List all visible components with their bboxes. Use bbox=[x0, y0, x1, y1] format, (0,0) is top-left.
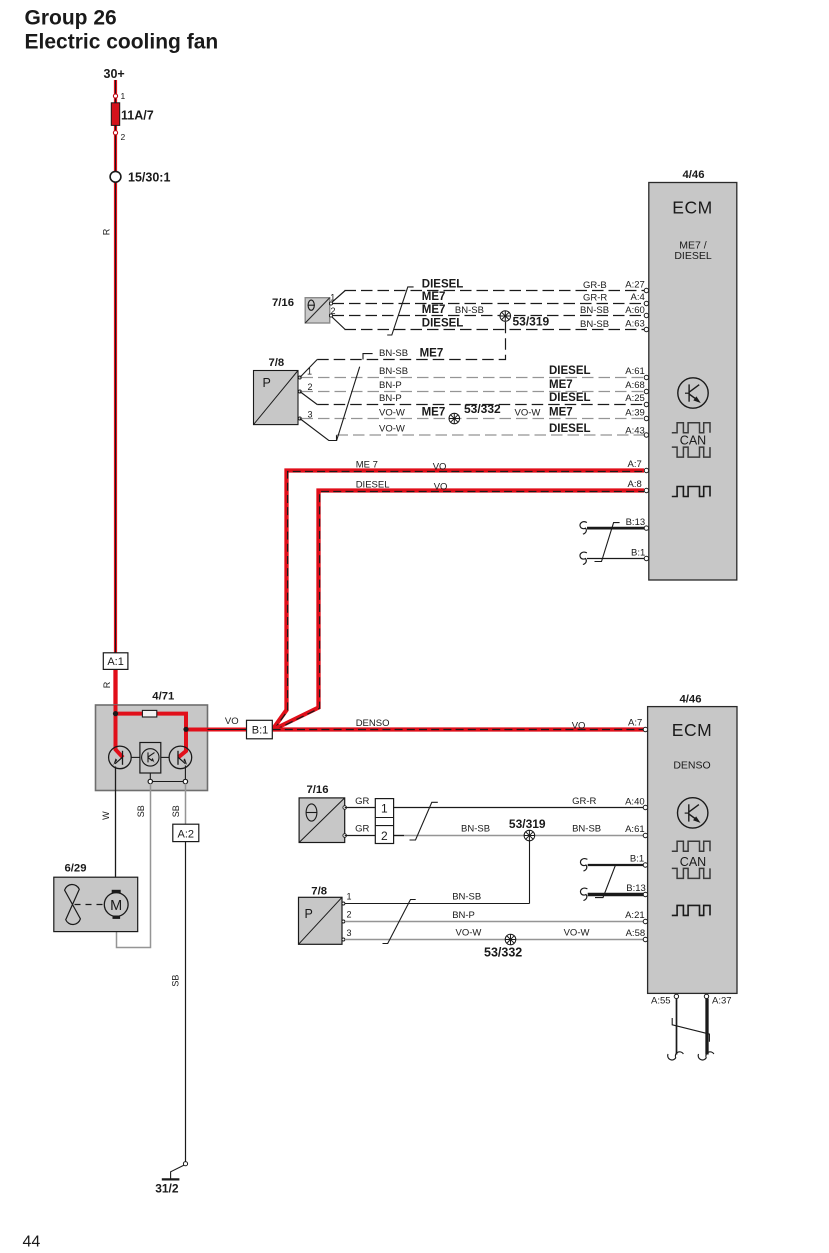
svg-text:A:37: A:37 bbox=[712, 996, 732, 1007]
svg-text:DIESEL: DIESEL bbox=[549, 392, 591, 404]
svg-text:W: W bbox=[101, 811, 111, 820]
svg-text:7/16: 7/16 bbox=[272, 297, 294, 309]
svg-text:DENSO: DENSO bbox=[673, 760, 710, 772]
svg-text:BN-P: BN-P bbox=[379, 380, 402, 391]
svg-text:VO-W: VO-W bbox=[515, 408, 541, 419]
svg-text:DIESEL: DIESEL bbox=[549, 423, 591, 435]
svg-text:1: 1 bbox=[347, 892, 352, 902]
svg-text:4/46: 4/46 bbox=[680, 694, 702, 706]
svg-text:VO-W: VO-W bbox=[564, 928, 590, 939]
svg-text:53/332: 53/332 bbox=[464, 402, 501, 416]
svg-text:3: 3 bbox=[347, 928, 352, 938]
svg-text:CAN: CAN bbox=[680, 855, 706, 869]
svg-text:SB: SB bbox=[171, 805, 181, 817]
svg-text:53/319: 53/319 bbox=[513, 315, 550, 329]
svg-text:A:21: A:21 bbox=[625, 910, 645, 921]
svg-text:A:43: A:43 bbox=[625, 425, 645, 436]
svg-text:ME7: ME7 bbox=[422, 407, 446, 419]
svg-text:VO-W: VO-W bbox=[379, 407, 405, 418]
svg-text:P: P bbox=[263, 376, 271, 390]
svg-text:7/16: 7/16 bbox=[307, 784, 329, 796]
svg-text:7/8: 7/8 bbox=[269, 357, 285, 369]
svg-text:A:25: A:25 bbox=[625, 393, 645, 404]
svg-text:VO: VO bbox=[433, 462, 447, 473]
svg-text:2: 2 bbox=[308, 382, 313, 392]
svg-text:1: 1 bbox=[121, 91, 126, 101]
svg-text:ME7: ME7 bbox=[422, 291, 446, 303]
svg-text:1: 1 bbox=[381, 801, 388, 815]
svg-text:ME7: ME7 bbox=[549, 407, 573, 419]
svg-text:BN-SB: BN-SB bbox=[379, 348, 408, 359]
svg-text:A:68: A:68 bbox=[625, 380, 645, 391]
svg-text:BN-SB: BN-SB bbox=[572, 824, 601, 835]
svg-text:BN-SB: BN-SB bbox=[452, 892, 481, 903]
svg-text:ME7: ME7 bbox=[422, 304, 446, 316]
svg-text:GR-R: GR-R bbox=[572, 796, 596, 807]
svg-text:GR: GR bbox=[355, 796, 369, 807]
svg-text:A:27: A:27 bbox=[625, 280, 645, 291]
svg-text:11A/7: 11A/7 bbox=[121, 109, 154, 123]
svg-text:BN-SB: BN-SB bbox=[455, 305, 484, 316]
svg-text:BN-SB: BN-SB bbox=[461, 824, 490, 835]
svg-text:ECM: ECM bbox=[672, 198, 712, 218]
svg-text:BN-P: BN-P bbox=[379, 393, 402, 404]
svg-text:GR-R: GR-R bbox=[583, 293, 607, 304]
svg-text:A:4: A:4 bbox=[631, 292, 645, 303]
svg-text:A:60: A:60 bbox=[625, 305, 645, 316]
svg-text:DIESEL: DIESEL bbox=[674, 250, 712, 262]
svg-text:SB: SB bbox=[171, 975, 181, 987]
svg-text:A:55: A:55 bbox=[651, 996, 671, 1007]
svg-text:A:63: A:63 bbox=[625, 319, 645, 330]
svg-text:A:61: A:61 bbox=[625, 824, 645, 835]
svg-text:2: 2 bbox=[381, 829, 388, 843]
svg-text:31/2: 31/2 bbox=[155, 1182, 179, 1196]
svg-text:A:58: A:58 bbox=[626, 928, 646, 939]
svg-text:A:40: A:40 bbox=[625, 797, 645, 808]
svg-text:DIESEL: DIESEL bbox=[422, 279, 464, 291]
svg-text:BN-SB: BN-SB bbox=[580, 305, 609, 316]
svg-text:6/29: 6/29 bbox=[65, 862, 87, 874]
svg-text:B:13: B:13 bbox=[626, 517, 646, 528]
svg-text:53/319: 53/319 bbox=[509, 817, 546, 831]
svg-text:ME7: ME7 bbox=[420, 347, 444, 359]
svg-text:DENSO: DENSO bbox=[356, 718, 390, 729]
svg-text:Group 26: Group 26 bbox=[25, 7, 117, 30]
svg-text:B:1: B:1 bbox=[252, 724, 269, 736]
svg-text:B:1: B:1 bbox=[631, 548, 645, 559]
svg-text:SB: SB bbox=[136, 805, 146, 817]
svg-text:ME7: ME7 bbox=[549, 379, 573, 391]
svg-text:2: 2 bbox=[347, 910, 352, 920]
svg-text:A:39: A:39 bbox=[625, 407, 645, 418]
svg-text:44: 44 bbox=[23, 1234, 41, 1251]
svg-text:BN-SB: BN-SB bbox=[580, 319, 609, 330]
svg-text:R: R bbox=[102, 681, 112, 688]
svg-text:7/8: 7/8 bbox=[311, 886, 327, 898]
svg-text:GR-B: GR-B bbox=[583, 280, 607, 291]
svg-text:2: 2 bbox=[121, 132, 126, 142]
svg-text:BN-SB: BN-SB bbox=[379, 366, 408, 377]
svg-text:VO-W: VO-W bbox=[379, 424, 405, 435]
svg-text:ME 7: ME 7 bbox=[356, 459, 378, 470]
svg-text:A:2: A:2 bbox=[178, 828, 195, 840]
svg-text:B:13: B:13 bbox=[626, 883, 646, 894]
svg-text:VO: VO bbox=[225, 716, 239, 727]
svg-text:30+: 30+ bbox=[104, 67, 125, 81]
svg-text:VO: VO bbox=[572, 720, 586, 731]
svg-text:A:8: A:8 bbox=[628, 479, 642, 490]
svg-text:15/30:1: 15/30:1 bbox=[128, 171, 170, 185]
svg-text:4/71: 4/71 bbox=[152, 690, 174, 702]
svg-text:DIESEL: DIESEL bbox=[549, 365, 591, 377]
svg-text:R: R bbox=[102, 228, 112, 235]
svg-text:53/332: 53/332 bbox=[484, 946, 522, 960]
svg-text:ECM: ECM bbox=[672, 720, 712, 740]
svg-text:4/46: 4/46 bbox=[683, 169, 705, 181]
svg-text:A:1: A:1 bbox=[107, 656, 124, 668]
svg-text:VO-W: VO-W bbox=[456, 928, 482, 939]
svg-text:VO: VO bbox=[434, 482, 448, 493]
svg-text:M: M bbox=[110, 898, 122, 914]
svg-text:A:7: A:7 bbox=[628, 718, 642, 729]
svg-text:BN-P: BN-P bbox=[452, 910, 475, 921]
svg-text:A:61: A:61 bbox=[625, 366, 645, 377]
svg-text:DIESEL: DIESEL bbox=[356, 479, 390, 490]
svg-text:Electric cooling fan: Electric cooling fan bbox=[25, 31, 219, 54]
svg-text:P: P bbox=[305, 907, 313, 921]
svg-text:B:1: B:1 bbox=[630, 853, 644, 864]
svg-text:GR: GR bbox=[355, 824, 369, 835]
svg-text:CAN: CAN bbox=[680, 434, 706, 448]
svg-text:DIESEL: DIESEL bbox=[422, 317, 464, 329]
